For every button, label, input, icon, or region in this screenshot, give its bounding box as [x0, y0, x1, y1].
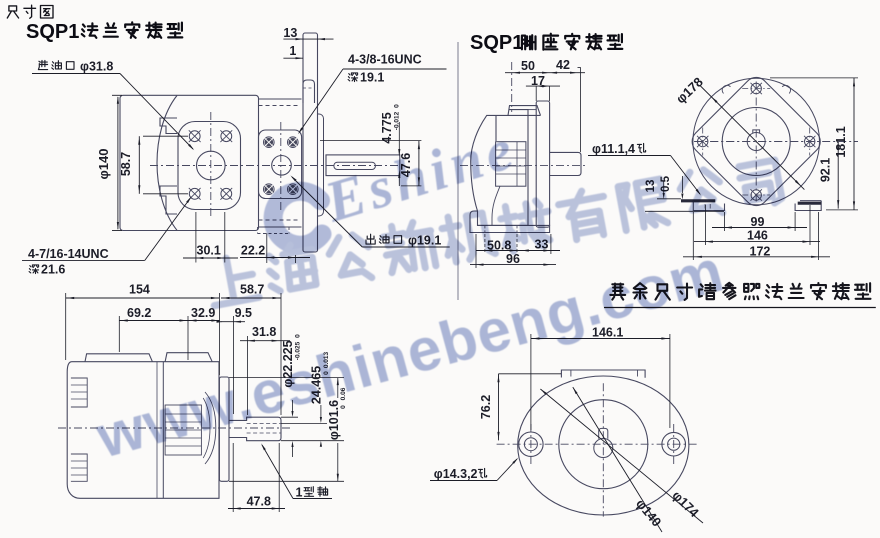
svg-text:SQP1: SQP1	[470, 32, 523, 54]
svg-text:4-7/16-14UNC: 4-7/16-14UNC	[28, 247, 109, 261]
svg-text:9.5: 9.5	[235, 306, 252, 320]
svg-text:146: 146	[747, 229, 768, 243]
svg-text:50: 50	[521, 59, 535, 73]
svg-text:181.1: 181.1	[834, 126, 848, 157]
svg-text:47.8: 47.8	[247, 495, 271, 509]
svg-text:31.8: 31.8	[252, 325, 276, 339]
svg-text:58.7: 58.7	[119, 152, 133, 176]
svg-text:22.2: 22.2	[241, 244, 265, 258]
svg-text:32.9: 32.9	[191, 306, 215, 320]
svg-text:φ31.8: φ31.8	[80, 60, 113, 74]
svg-text:76.2: 76.2	[479, 395, 493, 419]
svg-text:19.1: 19.1	[360, 71, 384, 85]
svg-text:154: 154	[129, 283, 150, 297]
svg-text:0: 0	[394, 104, 401, 108]
svg-text:92.1: 92.1	[819, 158, 833, 182]
svg-text:φ140: φ140	[96, 149, 111, 180]
svg-text:21.6: 21.6	[41, 263, 65, 277]
svg-text:0: 0	[295, 334, 302, 338]
svg-text:1: 1	[289, 44, 296, 58]
svg-text:1: 1	[296, 486, 303, 500]
svg-text:42: 42	[556, 58, 570, 72]
svg-text:4-3/8-16UNC: 4-3/8-16UNC	[348, 53, 422, 67]
svg-text:69.2: 69.2	[127, 306, 151, 320]
svg-text:φ14.3,2: φ14.3,2	[434, 467, 478, 481]
svg-text:30.1: 30.1	[197, 244, 221, 258]
svg-text:99: 99	[751, 215, 765, 229]
svg-text:φ11.1,4: φ11.1,4	[592, 142, 635, 156]
svg-text:4.775: 4.775	[380, 112, 394, 143]
svg-text:SQP1: SQP1	[26, 21, 79, 43]
svg-text:13: 13	[283, 26, 297, 40]
